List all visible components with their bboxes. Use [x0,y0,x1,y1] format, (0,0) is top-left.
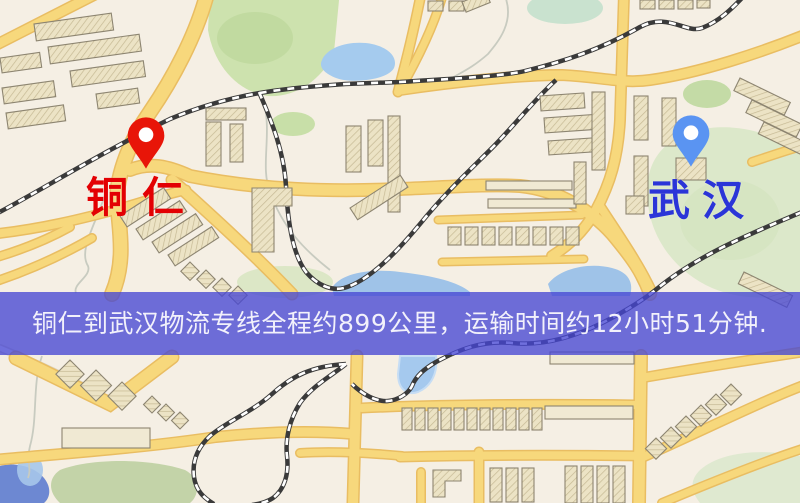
location-pin-icon [669,113,713,169]
pin-hole [139,127,154,142]
origin-pin[interactable] [124,115,168,171]
pin-body [128,117,165,168]
map-canvas[interactable] [0,0,800,503]
destination-label: 武汉 [648,181,756,223]
pin-body [673,115,710,166]
pin-hole [684,125,699,140]
origin-label: 铜仁 [86,178,198,220]
logistics-route-map: 铜仁 武汉 铜仁到武汉物流专线全程约899公里，运输时间约12小时51分钟. [0,0,800,503]
location-pin-icon [124,115,168,171]
route-info-banner: 铜仁到武汉物流专线全程约899公里，运输时间约12小时51分钟. [0,292,800,355]
route-info-text: 铜仁到武汉物流专线全程约899公里，运输时间约12小时51分钟. [32,304,767,340]
destination-pin[interactable] [669,113,713,169]
